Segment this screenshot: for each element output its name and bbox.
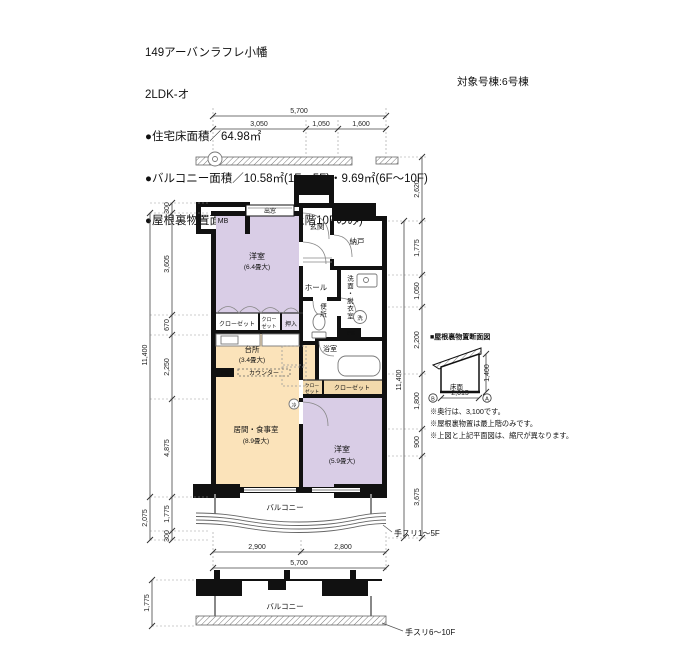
dim-top-seg1: 3,050 bbox=[250, 121, 268, 128]
dim-bottom-seg2: 2,800 bbox=[334, 544, 352, 551]
attic-mark-b: B bbox=[431, 397, 435, 403]
label-counter: カウンター bbox=[249, 369, 279, 377]
dim-left-seg4: 2,250 bbox=[164, 358, 171, 376]
label-balcony-2: バルコニー bbox=[266, 602, 303, 611]
label-closet3-l1: クロー bbox=[305, 383, 320, 389]
label-entrance: 玄関 bbox=[310, 221, 325, 231]
corridor-rail bbox=[196, 152, 398, 166]
attic-note-1: ※奥行は、3,100です。 bbox=[430, 407, 505, 416]
fridge-symbol: 冷 bbox=[291, 402, 296, 409]
bedroom2-floor bbox=[303, 398, 382, 487]
dim-left-seg1: 300 bbox=[164, 202, 171, 214]
dim-left-seg7: 300 bbox=[164, 530, 171, 542]
right-dimensions: 2,620 1,775 1,050 2,200 1,800 900 3,675 … bbox=[388, 154, 426, 541]
attic-section: ■屋根裏物置断面図 床面 1,400 2,015 B A ※奥行は、3,100で… bbox=[429, 332, 573, 440]
dim-right-seg1: 1,775 bbox=[414, 239, 421, 257]
dim-right-above: 2,620 bbox=[414, 180, 421, 198]
balcony-6-10f: バルコニー 手スリ6〜10F 1,775 bbox=[144, 570, 455, 637]
label-living: 居間・食事室 bbox=[234, 424, 279, 434]
dim-left-balcony-total: 2,075 bbox=[142, 509, 149, 527]
label-mb: MB bbox=[218, 218, 229, 225]
dim-top-total: 5,700 bbox=[290, 108, 308, 115]
floorplan-page: 149アーバンラフレ小幡 2LDK-オ ●住宅床面積／64.98㎡ ●バルコニー… bbox=[0, 0, 700, 650]
dim-right-seg5: 900 bbox=[414, 436, 421, 448]
label-closet3-wide: クローゼット bbox=[334, 384, 370, 392]
label-rail-1-5f: 手スリ1〜5F bbox=[394, 528, 440, 538]
kitchen-counter2 bbox=[262, 334, 299, 346]
label-bay-window: 出窓 bbox=[264, 207, 276, 215]
dim-lower-balcony: 1,775 bbox=[144, 594, 151, 612]
attic-note-3: ※上図と上記平面図は、縮尺が異なります。 bbox=[430, 431, 573, 440]
label-oshiire: 押入 bbox=[285, 320, 297, 328]
dim-left-seg5: 4,875 bbox=[164, 439, 171, 457]
label-bedroom1-size: (6.4畳大) bbox=[244, 262, 270, 271]
floorplan-drawing: 5,700 3,050 1,050 1,600 bbox=[0, 0, 700, 650]
label-toilet: 便所 bbox=[319, 302, 327, 319]
dim-top-seg2: 1,050 bbox=[312, 121, 330, 128]
washer-symbol: 洗 bbox=[357, 314, 363, 322]
label-bath: 浴室 bbox=[323, 344, 337, 353]
bottom-dimensions: 2,900 2,800 5,700 bbox=[210, 532, 389, 571]
dim-right-seg2: 1,050 bbox=[414, 282, 421, 300]
kitchen-sink bbox=[221, 336, 238, 344]
dim-left-seg2: 3,605 bbox=[164, 255, 171, 273]
label-closet3-l2: ゼット bbox=[305, 388, 320, 395]
attic-note-2: ※屋根裏物置は最上階のみです。 bbox=[430, 419, 537, 428]
balcony-1-5f: バルコニー 手スリ1〜5F bbox=[196, 494, 440, 538]
toilet-tank bbox=[312, 332, 326, 338]
attic-mark-a: A bbox=[485, 397, 489, 403]
dim-right-seg3: 2,200 bbox=[414, 331, 421, 349]
label-ps-washroom: PS bbox=[347, 331, 355, 337]
attic-section-title: ■屋根裏物置断面図 bbox=[430, 332, 490, 341]
label-bedroom1: 洋室 bbox=[249, 251, 265, 261]
dim-left-seg3: 670 bbox=[164, 319, 171, 331]
label-ps-counter: PS bbox=[221, 371, 229, 377]
label-kitchen-size: (3.4畳大) bbox=[239, 355, 265, 364]
dim-top-seg3: 1,600 bbox=[352, 121, 370, 128]
label-kitchen: 台所 bbox=[245, 344, 260, 354]
label-bedroom2-size: (5.9畳大) bbox=[329, 456, 355, 465]
label-closet2-l2: ゼット bbox=[261, 323, 276, 330]
top-dimensions: 5,700 3,050 1,050 1,600 bbox=[210, 108, 389, 155]
dining-column-floor bbox=[303, 341, 315, 380]
attic-dim-width: 2,015 bbox=[451, 390, 469, 397]
label-storeroom: 納戸 bbox=[350, 236, 365, 246]
dim-left-seg6: 1,775 bbox=[164, 505, 171, 523]
straight-handrail bbox=[196, 616, 386, 625]
label-bedroom2: 洋室 bbox=[334, 444, 350, 454]
attic-dim-height: 1,400 bbox=[484, 364, 491, 382]
dim-right-seg6: 3,675 bbox=[414, 488, 421, 506]
dim-left-overall: 11,400 bbox=[142, 344, 149, 365]
label-hall: ホール bbox=[305, 283, 328, 292]
label-closet2-l1: クロー bbox=[261, 317, 276, 323]
label-living-size: (8.9畳大) bbox=[243, 436, 269, 445]
label-washroom: 洗面・脱衣室 bbox=[346, 274, 354, 320]
label-rail-6-10f: 手スリ6〜10F bbox=[405, 627, 455, 637]
dim-bottom-seg1: 2,900 bbox=[248, 544, 266, 551]
dim-right-seg4: 1,800 bbox=[414, 392, 421, 410]
dim-bottom-total: 5,700 bbox=[290, 560, 308, 567]
label-closet1: クローゼット bbox=[219, 320, 255, 328]
dim-right-overall: 11,400 bbox=[396, 369, 403, 390]
bathtub bbox=[338, 356, 380, 376]
wavy-handrail bbox=[196, 513, 386, 533]
label-balcony-1: バルコニー bbox=[266, 503, 303, 512]
